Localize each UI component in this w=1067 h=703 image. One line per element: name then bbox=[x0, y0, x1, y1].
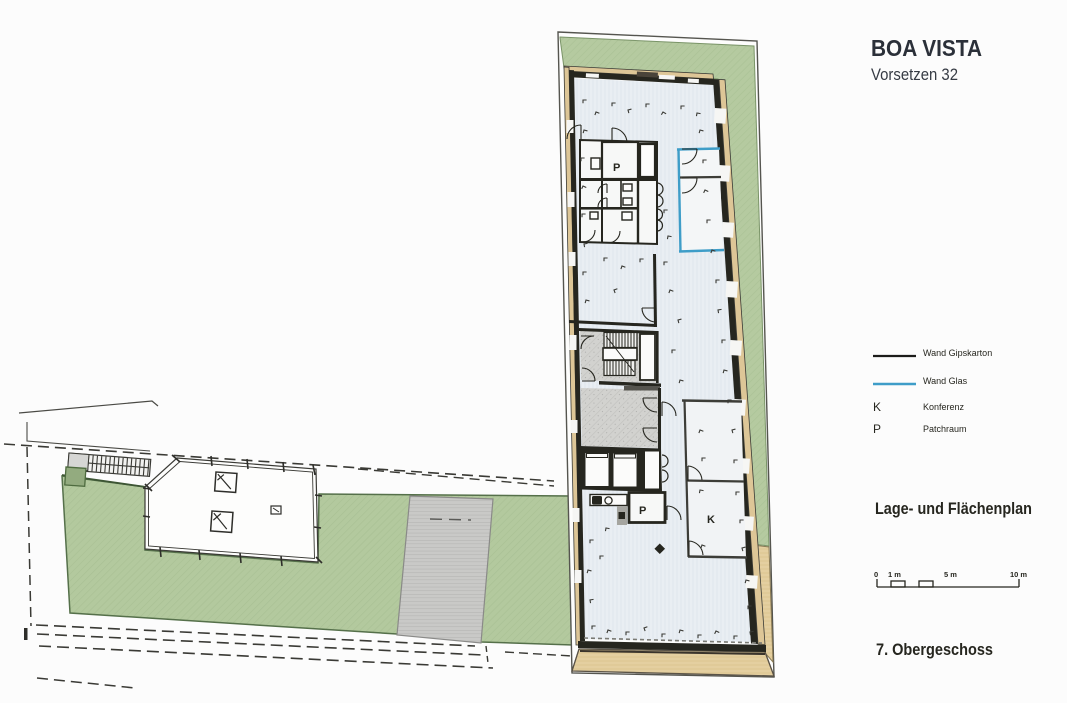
svg-text:0: 0 bbox=[874, 570, 878, 579]
svg-text:P: P bbox=[873, 422, 881, 436]
svg-text:Konferenz: Konferenz bbox=[923, 402, 965, 412]
svg-text:5 m: 5 m bbox=[944, 570, 957, 579]
svg-text:K: K bbox=[707, 514, 715, 526]
svg-text:Lage- und Flächenplan: Lage- und Flächenplan bbox=[875, 500, 1032, 518]
svg-text:P: P bbox=[613, 162, 620, 174]
svg-text:Patchraum: Patchraum bbox=[923, 424, 967, 434]
svg-text:10 m: 10 m bbox=[1010, 570, 1027, 579]
svg-text:Wand Gipskarton: Wand Gipskarton bbox=[923, 348, 992, 358]
svg-text:Vorsetzen 32: Vorsetzen 32 bbox=[871, 65, 958, 84]
svg-text:Wand Glas: Wand Glas bbox=[923, 376, 968, 386]
svg-text:7. Obergeschoss: 7. Obergeschoss bbox=[876, 641, 993, 659]
svg-text:K: K bbox=[873, 400, 881, 414]
svg-text:1 m: 1 m bbox=[888, 570, 901, 579]
svg-text:P: P bbox=[639, 505, 646, 517]
svg-text:BOA VISTA: BOA VISTA bbox=[871, 35, 982, 61]
